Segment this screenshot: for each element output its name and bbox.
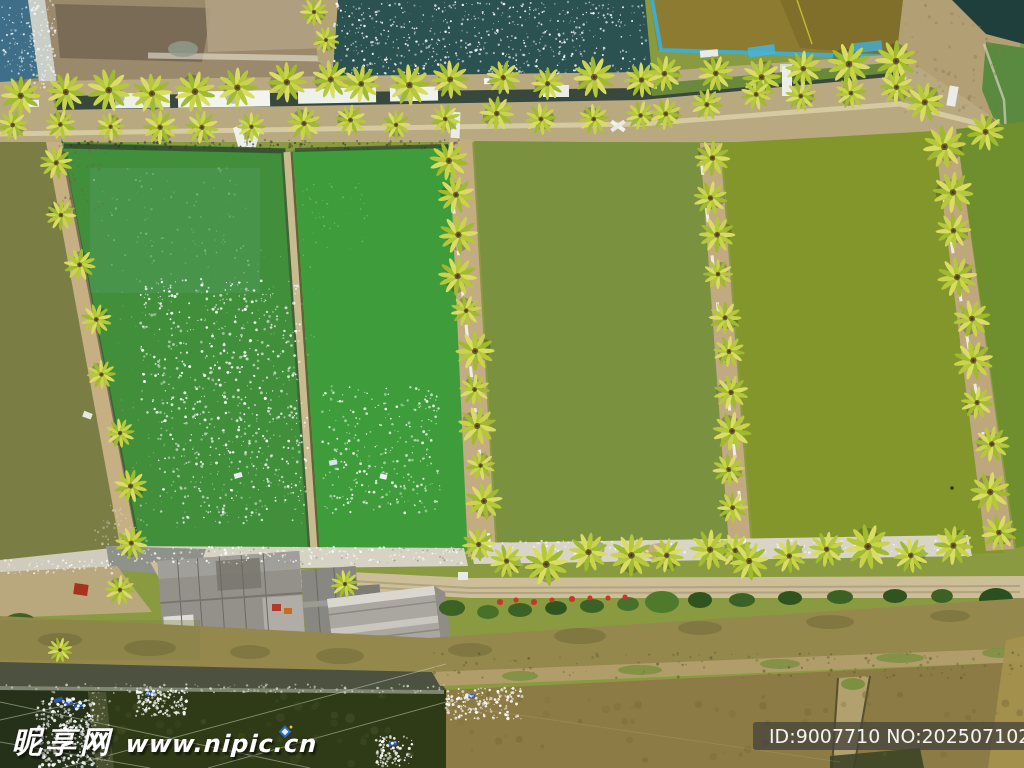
canal-algae-tint (0, 620, 200, 660)
aerial-photo-fish-farm: 昵享网 www.nipic.cn ID:9007710 NO:202507102… (0, 0, 1024, 768)
main-ponds (0, 122, 1024, 561)
site-url-text: www.nipic.cn (124, 730, 315, 758)
puddle (168, 41, 198, 57)
green-pond-2 (293, 145, 478, 552)
bird-dot (950, 486, 954, 490)
red-item-1 (272, 604, 281, 611)
watermark-site: 昵享网 www.nipic.cn (12, 722, 315, 763)
pond1-haze (90, 168, 260, 293)
white-tower (782, 66, 792, 96)
scene-canvas (0, 0, 1024, 768)
white-box (458, 572, 468, 580)
divider-grass (841, 678, 865, 690)
site-logo-text: 昵享网 (12, 722, 114, 763)
red-machine (73, 583, 88, 596)
red-item-2 (284, 608, 292, 614)
watermark-id-plate: ID:9007710 NO:20250710205937957102 (753, 722, 1024, 750)
